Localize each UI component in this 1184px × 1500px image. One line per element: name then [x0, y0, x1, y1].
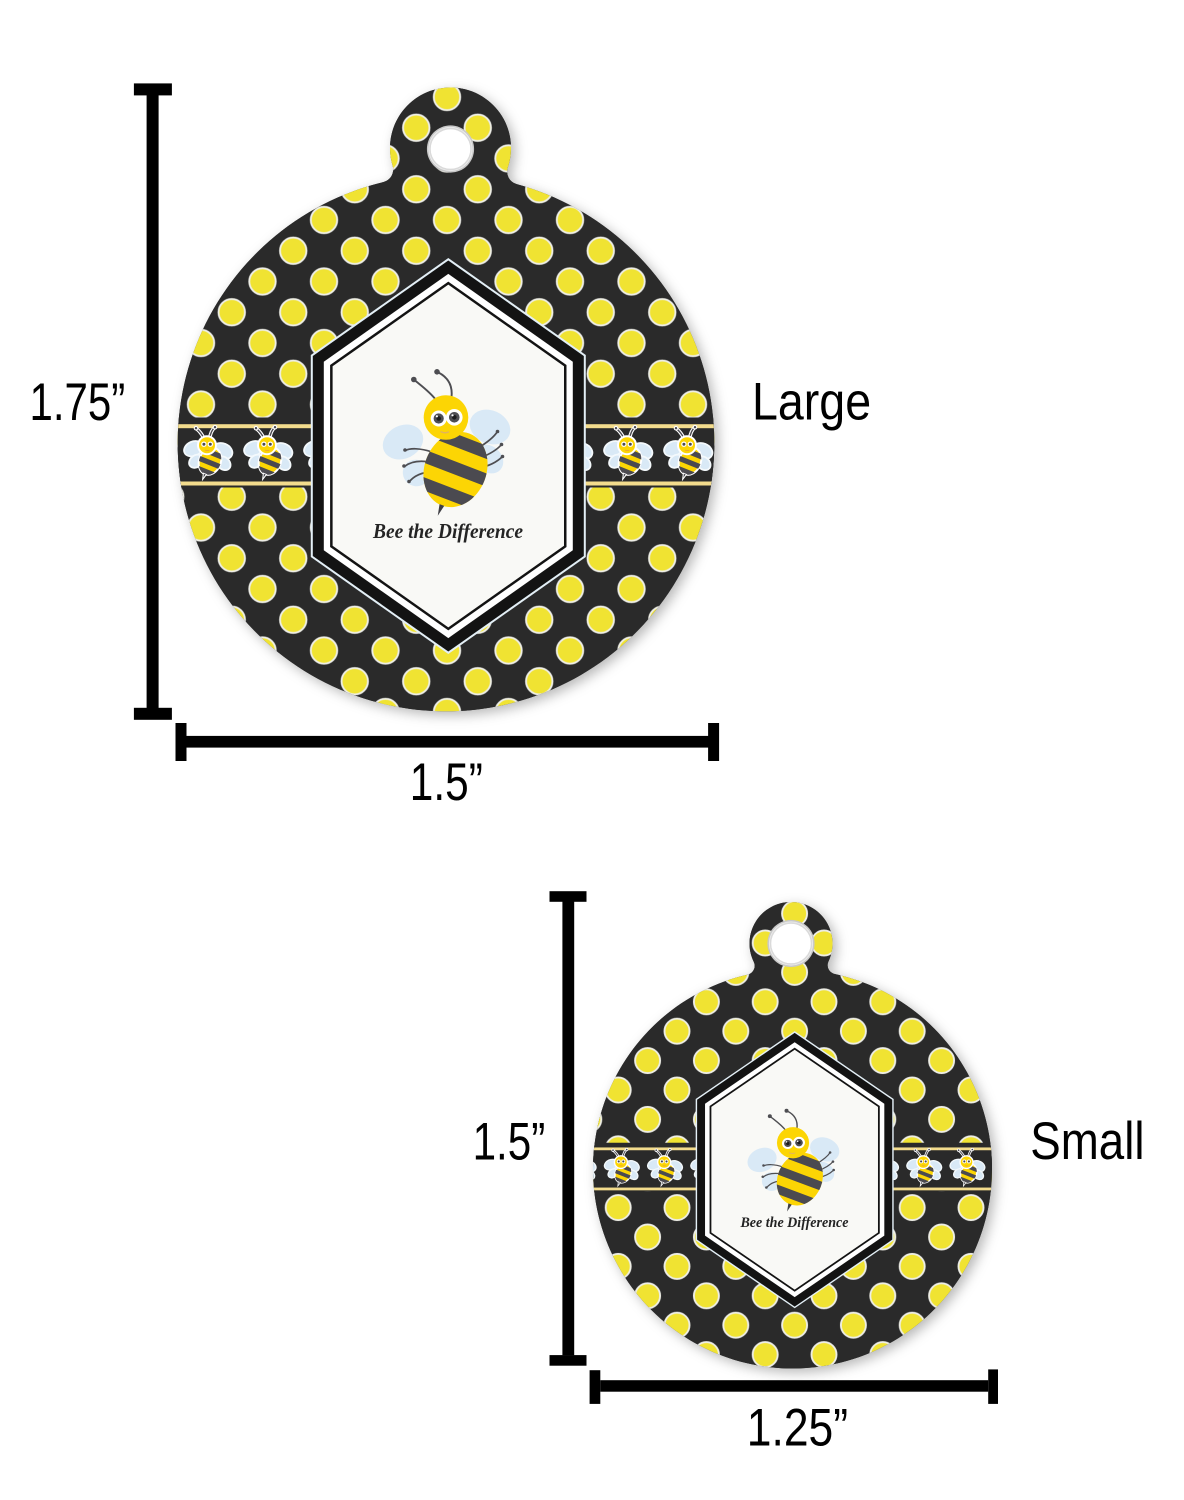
svg-text:Bee the Difference: Bee the Difference [372, 519, 523, 543]
svg-text:1.25”: 1.25” [747, 1399, 848, 1458]
svg-text:1.5”: 1.5” [473, 1112, 546, 1171]
svg-text:Bee the Difference: Bee the Difference [740, 1215, 849, 1231]
svg-text:1.75”: 1.75” [30, 373, 126, 432]
svg-text:Small: Small [1030, 1112, 1144, 1171]
svg-text:1.5”: 1.5” [410, 753, 483, 812]
svg-text:Large: Large [752, 372, 871, 431]
